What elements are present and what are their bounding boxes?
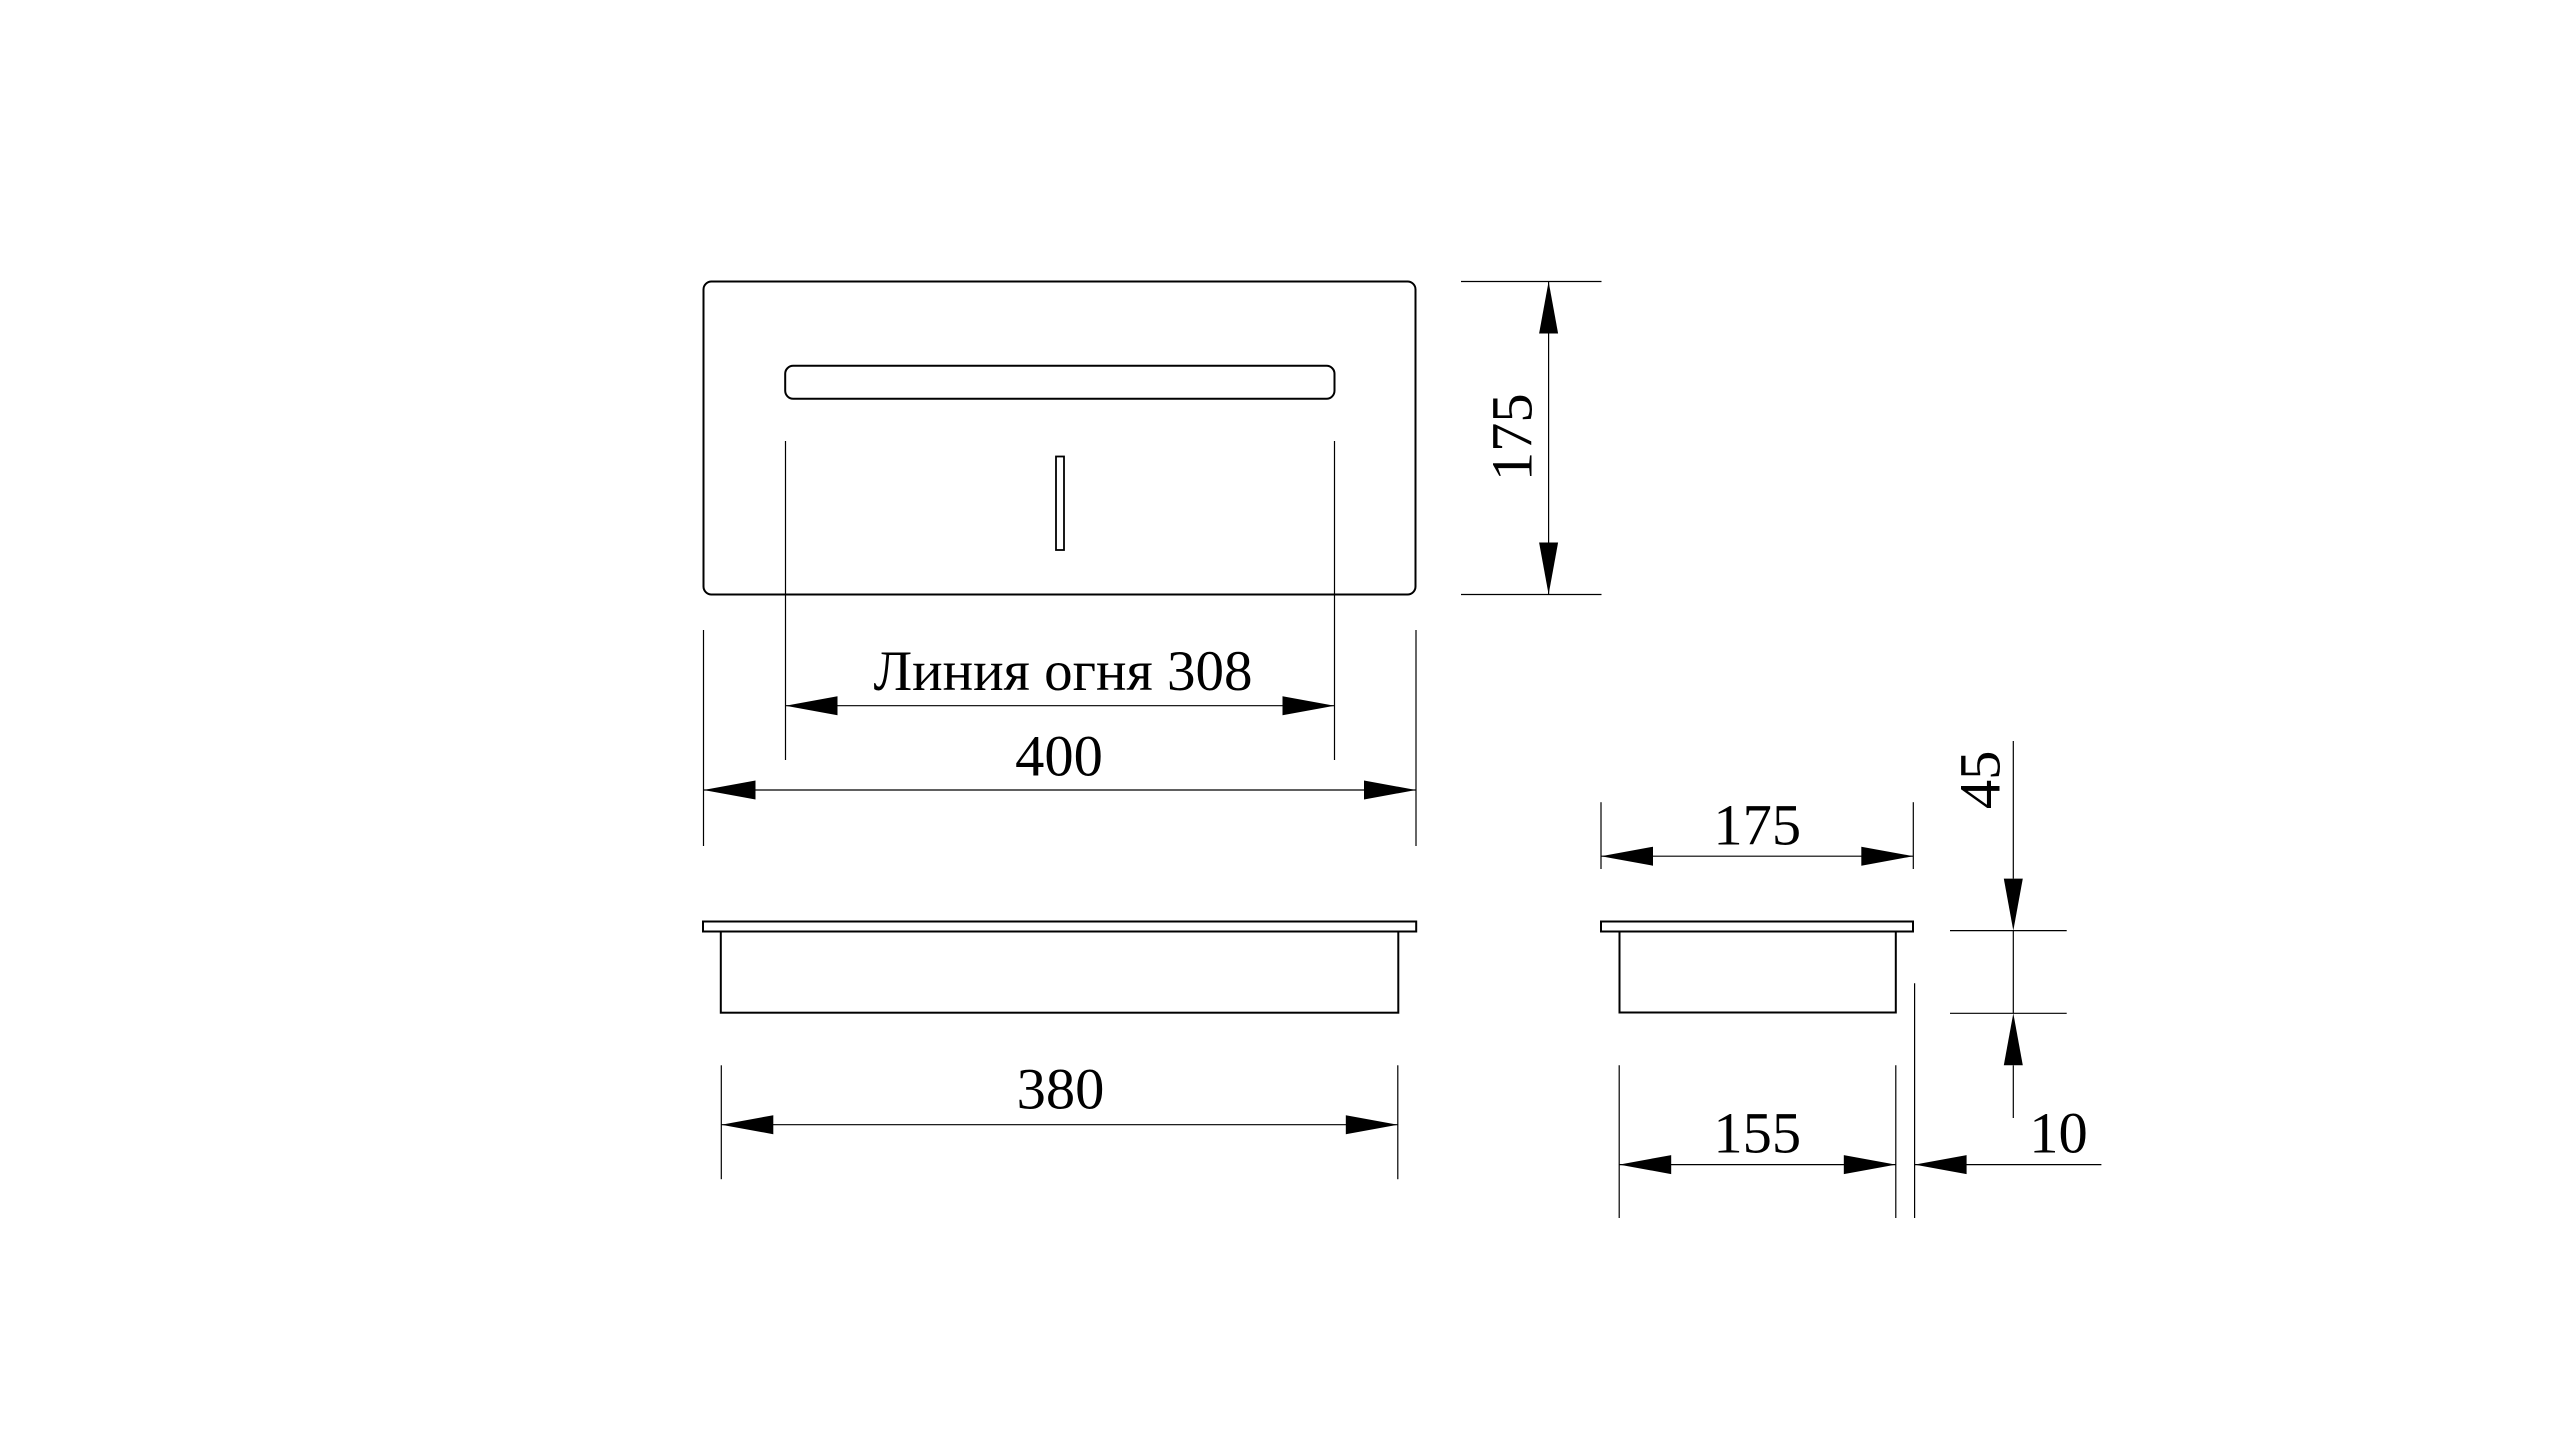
svg-text:Линия огня 308: Линия огня 308 <box>874 640 1253 703</box>
svg-text:10: 10 <box>2029 1101 2088 1166</box>
svg-text:155: 155 <box>1713 1100 1801 1165</box>
svg-text:45: 45 <box>1948 751 2013 810</box>
svg-text:175: 175 <box>1480 393 1545 481</box>
svg-text:175: 175 <box>1713 793 1801 858</box>
svg-text:380: 380 <box>1017 1057 1105 1122</box>
svg-text:400: 400 <box>1015 724 1103 789</box>
